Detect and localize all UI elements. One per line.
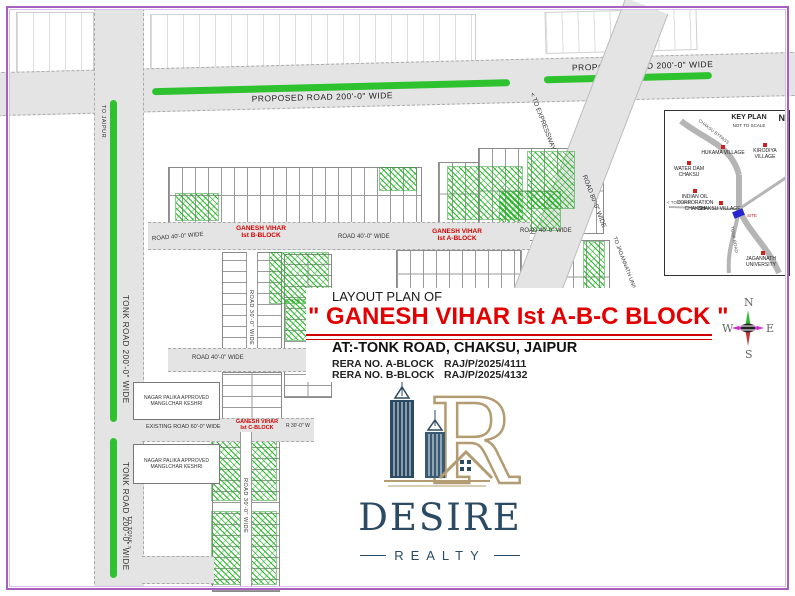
road-label: ROAD 30'-0" WIDE <box>248 290 254 345</box>
road-label: < TO PHAGI <box>667 200 692 205</box>
approval-note: NAGAR PALIKA APPROVED MANGLCHAR KESHRI <box>133 382 220 420</box>
plot-block <box>168 167 422 224</box>
place-label: HUKAMA VILLAGE <box>701 151 745 157</box>
road-label: TO TONK > <box>126 516 132 549</box>
approval-note: NAGAR PALIKA APPROVED MANGLCHAR KESHRI <box>133 444 220 484</box>
title-block: LAYOUT PLAN OF " GANESH VIHAR Ist A-B-C … <box>306 288 718 382</box>
place-dot <box>721 145 725 149</box>
key-plan-inset: KEY PLAN NOT TO SCALE N HUKAMA VILLAGE K… <box>664 110 790 276</box>
site-label: SITE <box>747 213 757 218</box>
road-label: R 30'-0" W <box>286 423 310 429</box>
road-label: ROAD 40'-0" WIDE <box>192 355 244 361</box>
logo-name: DESIRE <box>340 496 540 539</box>
place-dot <box>761 251 765 255</box>
place-label: KIRODIYA VILLAGE <box>743 149 787 161</box>
block-label-a: GANESH VIHAR Ist A-BLOCK <box>426 228 488 243</box>
block-label-b: GANESH VIHAR Ist B-BLOCK <box>230 225 292 240</box>
block-sub: Ist C-BLOCK <box>230 425 284 431</box>
tonk-road <box>94 8 144 589</box>
road-median <box>110 438 117 578</box>
plot-block <box>16 12 94 76</box>
compass-s: S <box>745 348 753 361</box>
place-label: WATER DAM CHAKSU <box>667 167 711 179</box>
block-label-c: GANESH VIHAR Ist C-BLOCK <box>230 419 284 432</box>
compass-rose: N S W E <box>722 296 774 364</box>
tagline-rule <box>494 555 520 556</box>
desire-realty-logo: R DESIRE <box>340 380 540 570</box>
plot-block <box>222 372 282 420</box>
page-title: " GANESH VIHAR Ist A-B-C BLOCK " <box>308 303 716 331</box>
block-sub: Ist B-BLOCK <box>230 232 292 239</box>
address-line: AT:-TONK ROAD, CHAKSU, JAIPUR <box>332 340 577 356</box>
tagline-rule <box>360 555 386 556</box>
road-label: TONK ROAD 200'-0" WIDE <box>121 295 130 404</box>
road-label: TO JAIPUR <box>100 105 106 138</box>
layout-plan-canvas: PROPOSED ROAD 200'-0" WIDE PROPOSED ROAD… <box>0 0 795 596</box>
existing-road <box>142 418 314 442</box>
block-sub: Ist A-BLOCK <box>426 235 488 242</box>
logo-tagline: REALTY <box>394 548 486 563</box>
place-dot <box>763 143 767 147</box>
logo-monogram-icon: R <box>340 380 540 495</box>
compass-n: N <box>744 296 754 309</box>
road-label: ROAD 40'-0" WIDE <box>520 228 572 234</box>
internal-road <box>142 556 214 584</box>
place-dot <box>687 161 691 165</box>
logo-tagline-row: REALTY <box>340 548 540 563</box>
block-name: GANESH VIHAR <box>230 225 292 232</box>
road-label: EXISTING ROAD 60'-0" WIDE <box>146 424 221 430</box>
road-label: ROAD 30'-0" WIDE <box>242 478 248 533</box>
note-line: MANGLCHAR KESHRI <box>151 464 203 471</box>
note-line: MANGLCHAR KESHRI <box>151 401 203 408</box>
key-plan-subtitle: NOT TO SCALE <box>717 123 781 128</box>
north-indicator: N <box>779 113 786 123</box>
key-plan-title: KEY PLAN <box>717 114 781 121</box>
place-label: JAGANNATH UNIVERSITY <box>739 257 783 269</box>
title-kicker: LAYOUT PLAN OF <box>332 289 442 304</box>
road-median <box>110 100 117 422</box>
place-dot <box>719 201 723 205</box>
key-plan-roads <box>665 111 789 275</box>
road-label: ROAD 40'-0" WIDE <box>338 234 390 240</box>
block-name: GANESH VIHAR <box>426 228 488 235</box>
compass-star-icon <box>732 310 764 346</box>
compass-e: E <box>766 322 774 335</box>
place-dot <box>693 189 697 193</box>
